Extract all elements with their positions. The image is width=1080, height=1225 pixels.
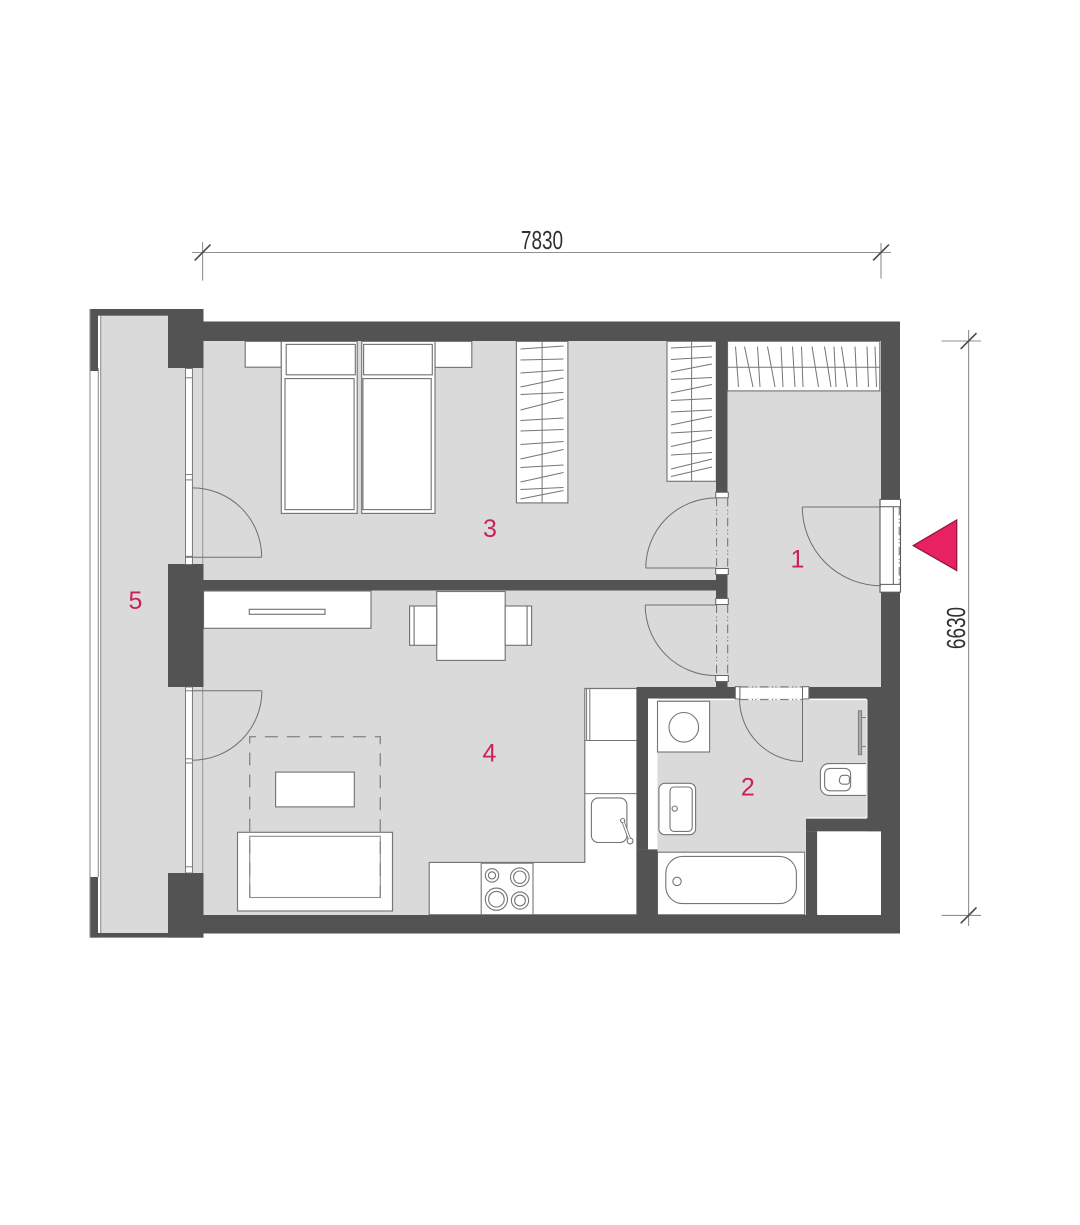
svg-text:3: 3 xyxy=(483,515,497,543)
svg-text:1: 1 xyxy=(791,546,805,574)
svg-text:4: 4 xyxy=(482,739,496,767)
svg-text:5: 5 xyxy=(129,587,143,615)
svg-text:2: 2 xyxy=(741,774,755,802)
svg-text:6630: 6630 xyxy=(941,607,971,649)
svg-text:7830: 7830 xyxy=(521,225,563,255)
